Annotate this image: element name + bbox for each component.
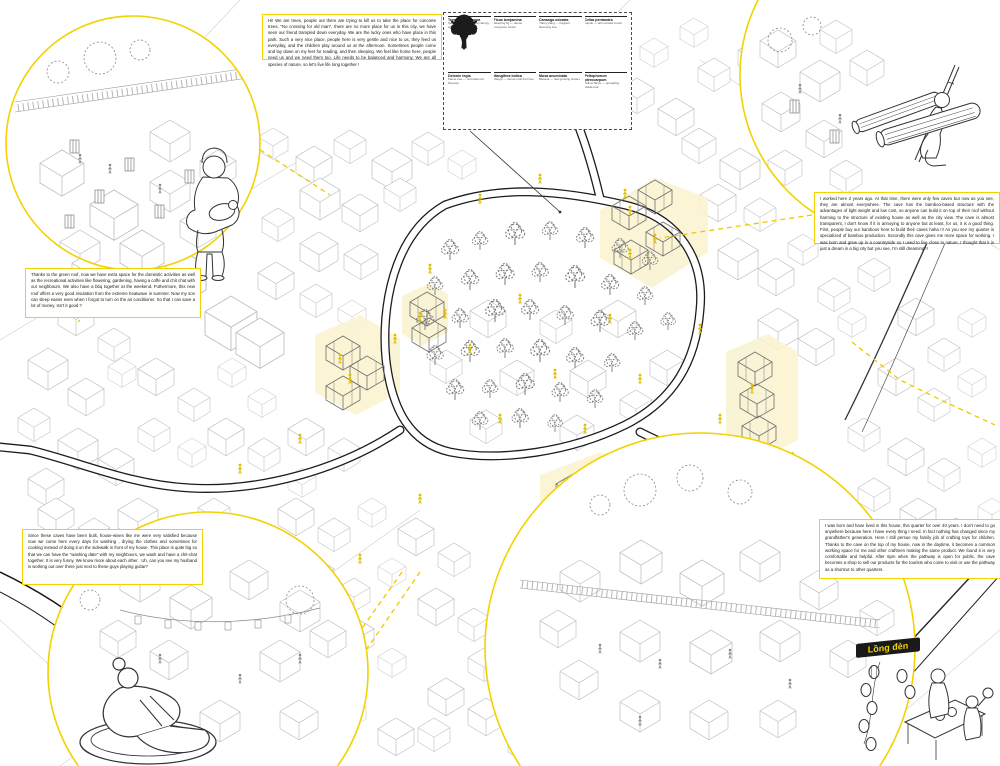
- legend-item-note: Flame tree — umbrella red blossom: [448, 78, 491, 86]
- annotation-housewife: Since these caves have been built, house…: [22, 529, 203, 585]
- legend-item-note: Kapok — tall rounded crown: [585, 22, 623, 26]
- legend-item-note: Ylang-ylang — fragrant flowering tree: [539, 22, 582, 30]
- annotation-bamboo-worker: I worked here 2 years ago. At that time,…: [814, 192, 1000, 244]
- legend-item-note: Banana — fast growing cluster: [539, 78, 580, 82]
- annotation-toy-craftsman: I was born and have lived in this house,…: [819, 519, 1000, 579]
- masterplan-sheet: Lồng đèn Hi! We are trees, people out th…: [0, 0, 1000, 766]
- legend-item: Musa acuminata Banana — fast growing clu…: [539, 72, 582, 126]
- legend-item: Ficus benjamina Weeping fig — dense ever…: [494, 16, 537, 70]
- legend-item: Delonix regia Flame tree — umbrella red …: [448, 72, 491, 126]
- legend-item-note: Mango — dense oval fruit tree: [494, 78, 534, 82]
- legend-item: Peltophorum pterocarpum Yellow flame — s…: [585, 72, 628, 126]
- annotation-greenroof-resident: Thanks to the green roof, now we have ex…: [25, 268, 201, 318]
- legend-item: Mangifera indica Mango — dense oval frui…: [494, 72, 537, 126]
- vendor-figure: [931, 669, 945, 683]
- tree-species-legend: Terminalia catappa Sea almond — layered …: [443, 12, 632, 130]
- vignette-top-left: [6, 16, 260, 276]
- legend-item: Cananga odorata Ylang-ylang — fragrant f…: [539, 16, 582, 70]
- legend-leader-line: [470, 131, 560, 212]
- legend-item: Ceiba pentandra Kapok — tall rounded cro…: [585, 16, 628, 70]
- child-figure: [966, 696, 978, 708]
- legend-item-note: Weeping fig — dense evergreen crown: [494, 22, 537, 30]
- legend-item-note: Yellow flame — spreading shade tree: [585, 82, 628, 90]
- annotation-trees-monologue: Hi! We are trees, people out there are t…: [262, 14, 442, 60]
